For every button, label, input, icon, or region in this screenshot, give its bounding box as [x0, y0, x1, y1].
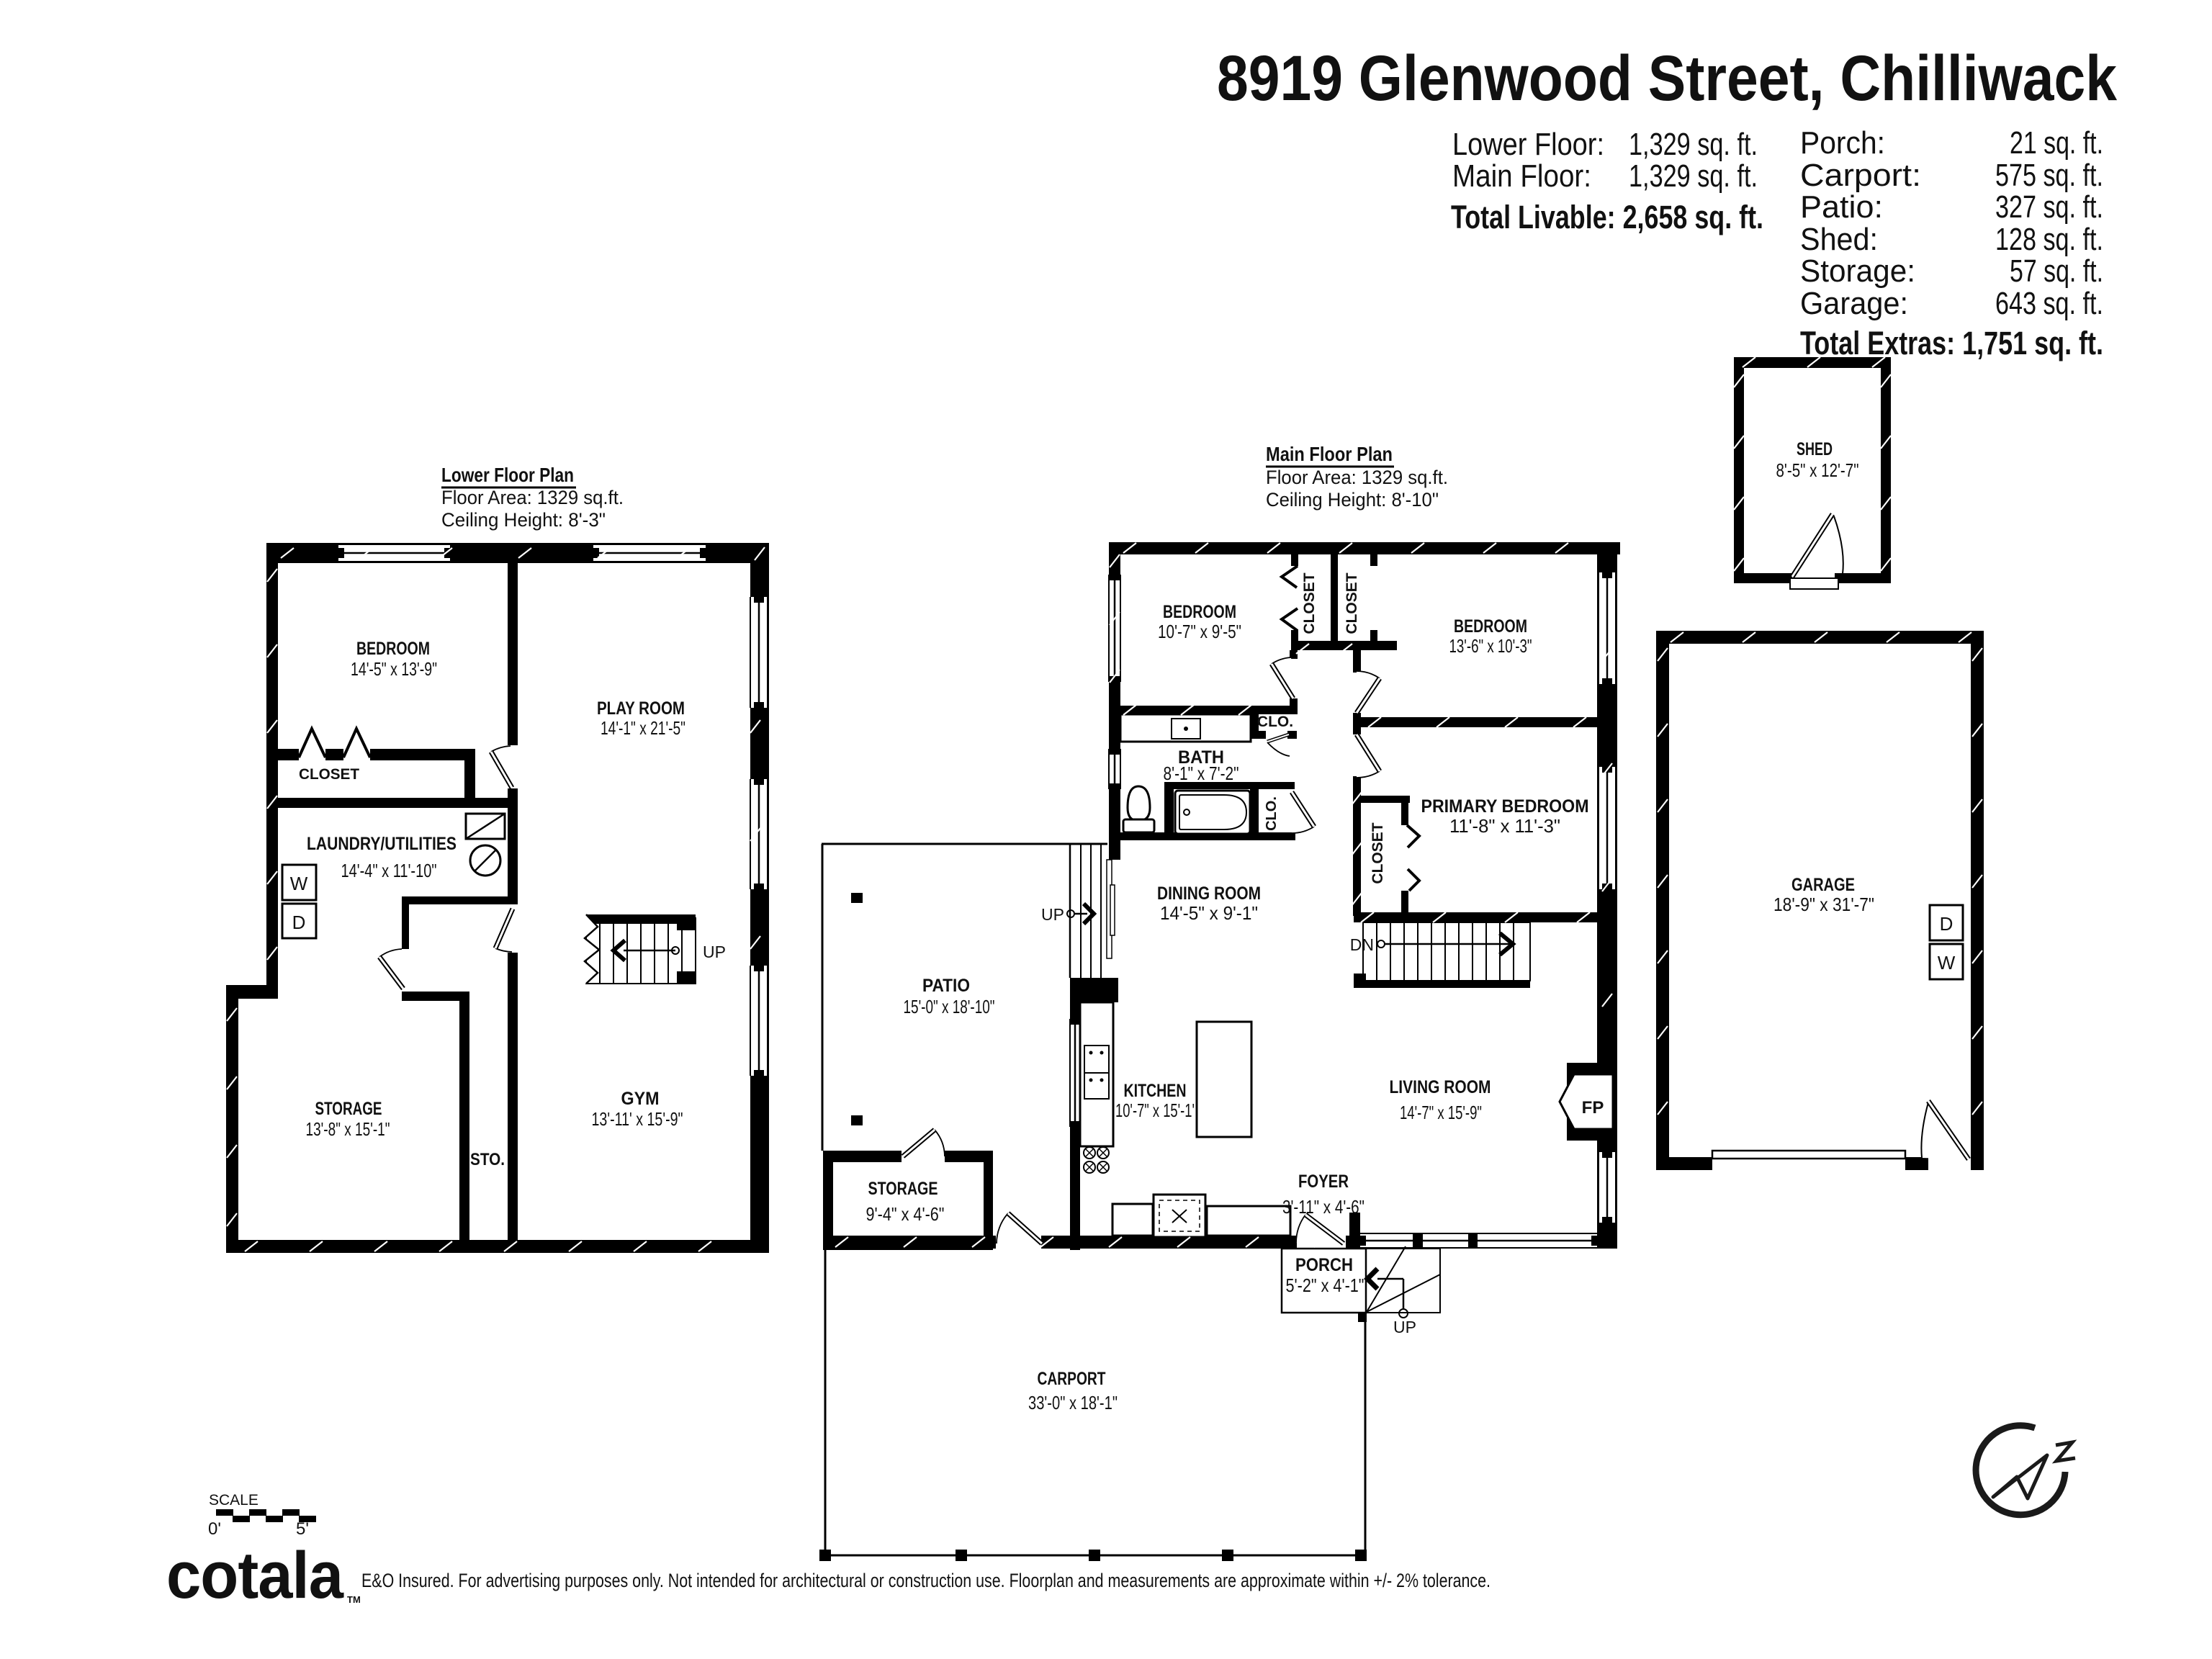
- svg-text:Ceiling Height: 8'-3": Ceiling Height: 8'-3": [441, 509, 606, 531]
- svg-text:13'-8" x 15'-1": 13'-8" x 15'-1": [306, 1118, 390, 1140]
- svg-text:9'-4" x 4'-6": 9'-4" x 4'-6": [866, 1203, 945, 1225]
- svg-text:8919 Glenwood Street, Chilliwa: 8919 Glenwood Street, Chilliwack: [1217, 42, 2117, 114]
- svg-text:14'-5" x 9'-1": 14'-5" x 9'-1": [1160, 902, 1258, 924]
- svg-text:W: W: [290, 873, 308, 894]
- svg-text:GARAGE: GARAGE: [1791, 875, 1855, 895]
- svg-text:18'-9" x 31'-7": 18'-9" x 31'-7": [1773, 894, 1874, 915]
- svg-text:W: W: [1938, 952, 1956, 974]
- svg-text:Floor Area: 1329 sq.ft.: Floor Area: 1329 sq.ft.: [1266, 467, 1448, 488]
- svg-text:Lower Floor:: Lower Floor:: [1452, 127, 1604, 162]
- svg-text:Lower Floor Plan: Lower Floor Plan: [441, 464, 574, 486]
- svg-text:11'-8" x 11'-3": 11'-8" x 11'-3": [1449, 815, 1560, 837]
- svg-text:Carport:: Carport:: [1800, 158, 1921, 193]
- svg-text:PORCH: PORCH: [1295, 1255, 1353, 1275]
- svg-text:CLOSET: CLOSET: [299, 766, 359, 783]
- svg-text:SCALE: SCALE: [209, 1492, 258, 1509]
- svg-text:PLAY ROOM: PLAY ROOM: [597, 698, 685, 719]
- svg-text:BEDROOM: BEDROOM: [1454, 616, 1527, 637]
- svg-text:DN: DN: [1350, 935, 1374, 954]
- svg-text:TM: TM: [347, 1594, 361, 1605]
- svg-text:Garage:: Garage:: [1800, 286, 1908, 321]
- svg-text:STORAGE: STORAGE: [315, 1099, 382, 1119]
- svg-text:327 sq. ft.: 327 sq. ft.: [1995, 189, 2103, 225]
- svg-text:Patio:: Patio:: [1800, 189, 1883, 225]
- svg-text:FP: FP: [1582, 1098, 1604, 1118]
- svg-text:Porch:: Porch:: [1800, 125, 1885, 161]
- svg-text:8'-5" x 12'-7": 8'-5" x 12'-7": [1776, 459, 1859, 481]
- svg-text:D: D: [292, 912, 306, 933]
- svg-text:E&O Insured. For advertising p: E&O Insured. For advertising purposes on…: [361, 1570, 1491, 1591]
- svg-text:LAUNDRY/UTILITIES: LAUNDRY/UTILITIES: [307, 834, 457, 854]
- svg-text:5': 5': [296, 1519, 309, 1539]
- svg-text:14'-1" x 21'-5": 14'-1" x 21'-5": [601, 717, 685, 739]
- svg-text:cotala: cotala: [166, 1539, 344, 1612]
- svg-text:14'-7" x 15'-9": 14'-7" x 15'-9": [1400, 1102, 1482, 1123]
- svg-text:BEDROOM: BEDROOM: [356, 639, 430, 659]
- svg-text:GYM: GYM: [621, 1089, 660, 1109]
- svg-text:Ceiling Height: 8'-10": Ceiling Height: 8'-10": [1266, 489, 1439, 511]
- svg-text:13'-11' x 15'-9": 13'-11' x 15'-9": [592, 1108, 683, 1130]
- svg-text:33'-0" x 18'-1": 33'-0" x 18'-1": [1028, 1392, 1118, 1413]
- svg-text:STO.: STO.: [470, 1150, 505, 1169]
- svg-text:STORAGE: STORAGE: [868, 1179, 938, 1199]
- svg-text:PRIMARY BEDROOM: PRIMARY BEDROOM: [1421, 796, 1589, 817]
- svg-text:575 sq. ft.: 575 sq. ft.: [1995, 158, 2103, 193]
- svg-text:CLOSET: CLOSET: [1301, 572, 1318, 634]
- svg-text:CLO.: CLO.: [1257, 714, 1293, 730]
- svg-text:1,329 sq. ft.: 1,329 sq. ft.: [1629, 127, 1758, 162]
- svg-text:Main Floor Plan: Main Floor Plan: [1266, 443, 1393, 465]
- svg-text:Floor Area: 1329 sq.ft.: Floor Area: 1329 sq.ft.: [441, 487, 624, 508]
- svg-text:21 sq. ft.: 21 sq. ft.: [2010, 125, 2103, 161]
- svg-text:KITCHEN: KITCHEN: [1124, 1081, 1187, 1101]
- svg-text:15'-0" x 18'-10": 15'-0" x 18'-10": [904, 996, 995, 1017]
- svg-text:SHED: SHED: [1797, 439, 1833, 459]
- svg-text:LIVING ROOM: LIVING ROOM: [1390, 1077, 1491, 1097]
- svg-text:PATIO: PATIO: [922, 976, 970, 996]
- svg-text:FOYER: FOYER: [1298, 1172, 1349, 1192]
- svg-text:CLOSET: CLOSET: [1370, 822, 1386, 884]
- svg-text:14'-5" x 13'-9": 14'-5" x 13'-9": [351, 658, 437, 680]
- svg-text:14'-4" x 11'-10": 14'-4" x 11'-10": [341, 860, 437, 881]
- svg-text:CARPORT: CARPORT: [1038, 1369, 1106, 1389]
- svg-text:13'-6" x 10'-3": 13'-6" x 10'-3": [1449, 635, 1532, 657]
- svg-text:Total Livable: 2,658 sq. ft.: Total Livable: 2,658 sq. ft.: [1451, 199, 1763, 235]
- svg-text:128 sq. ft.: 128 sq. ft.: [1995, 222, 2103, 257]
- svg-text:UP: UP: [1041, 905, 1064, 924]
- svg-text:1,329 sq. ft.: 1,329 sq. ft.: [1629, 158, 1758, 194]
- svg-text:UP: UP: [1393, 1318, 1416, 1336]
- svg-text:5'-2" x 4'-1": 5'-2" x 4'-1": [1286, 1274, 1364, 1296]
- svg-text:Storage:: Storage:: [1800, 253, 1915, 289]
- svg-text:BEDROOM: BEDROOM: [1163, 602, 1236, 622]
- svg-text:57 sq. ft.: 57 sq. ft.: [2010, 253, 2103, 289]
- svg-text:D: D: [1940, 913, 1954, 935]
- svg-text:10'-7" x 15'-1': 10'-7" x 15'-1': [1115, 1100, 1195, 1121]
- svg-text:643 sq. ft.: 643 sq. ft.: [1995, 286, 2103, 321]
- svg-text:Shed:: Shed:: [1800, 222, 1878, 257]
- svg-text:UP: UP: [703, 943, 726, 961]
- svg-text:DINING ROOM: DINING ROOM: [1157, 884, 1261, 904]
- svg-text:Total Extras: 1,751 sq. ft.: Total Extras: 1,751 sq. ft.: [1800, 325, 2103, 361]
- svg-text:Main Floor:: Main Floor:: [1452, 158, 1591, 194]
- svg-text:0': 0': [208, 1519, 221, 1539]
- svg-text:CLOSET: CLOSET: [1344, 572, 1360, 634]
- svg-text:CLO.: CLO.: [1264, 796, 1280, 831]
- svg-text:8'-1" x 7'-2": 8'-1" x 7'-2": [1164, 763, 1239, 784]
- svg-text:10'-7" x 9'-5": 10'-7" x 9'-5": [1158, 621, 1241, 642]
